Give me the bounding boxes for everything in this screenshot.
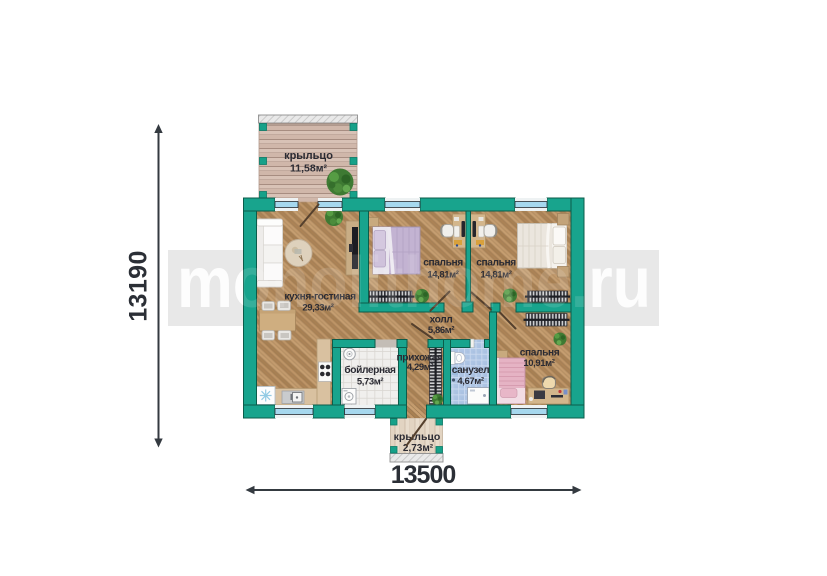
svg-text:4,67м²: 4,67м²	[457, 376, 484, 387]
svg-text:13500: 13500	[391, 461, 456, 489]
svg-text:monolithome.ru: monolithome.ru	[177, 243, 651, 323]
svg-text:13190: 13190	[125, 250, 153, 322]
svg-text:санузел: санузел	[452, 365, 489, 376]
svg-text:10,91м²: 10,91м²	[523, 358, 554, 369]
svg-text:11,58м²: 11,58м²	[290, 163, 327, 175]
svg-text:5,86м²: 5,86м²	[428, 325, 455, 336]
svg-text:бойлерная: бойлерная	[344, 364, 396, 376]
svg-text:спальня: спальня	[520, 348, 560, 359]
svg-text:крыльцо: крыльцо	[284, 150, 333, 162]
svg-text:5,73м²: 5,73м²	[357, 377, 384, 388]
svg-text:4,29м²: 4,29м²	[407, 362, 434, 373]
